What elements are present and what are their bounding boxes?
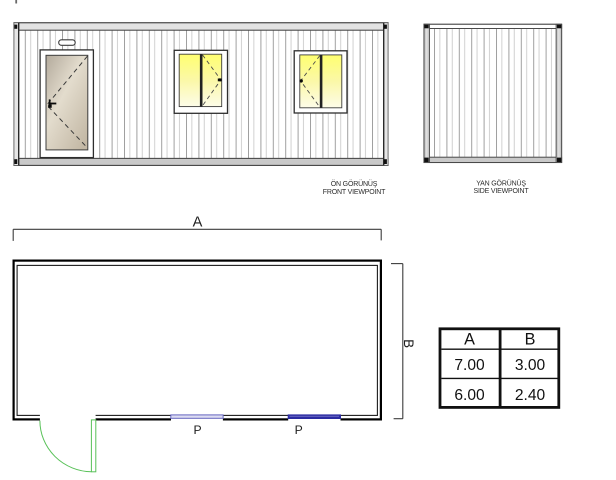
svg-text:SIDE VIEWPOINT: SIDE VIEWPOINT	[473, 188, 529, 195]
svg-text:P: P	[194, 423, 202, 437]
svg-text:A: A	[464, 331, 475, 349]
svg-text:YAN GÖRÜNÜŞ: YAN GÖRÜNÜŞ	[476, 179, 526, 187]
svg-text:ÖN GÖRÜNÜŞ: ÖN GÖRÜNÜŞ	[331, 180, 378, 188]
svg-text:7.00: 7.00	[454, 357, 485, 374]
svg-text:B: B	[401, 339, 416, 348]
svg-text:3.00: 3.00	[515, 357, 546, 374]
svg-text:P: P	[295, 423, 303, 437]
svg-text:2.40: 2.40	[515, 387, 546, 404]
svg-text:A: A	[193, 214, 203, 230]
svg-text:FRONT VIEWPOINT: FRONT VIEWPOINT	[323, 189, 386, 196]
svg-text:6.00: 6.00	[454, 387, 485, 404]
svg-text:B: B	[525, 331, 536, 349]
